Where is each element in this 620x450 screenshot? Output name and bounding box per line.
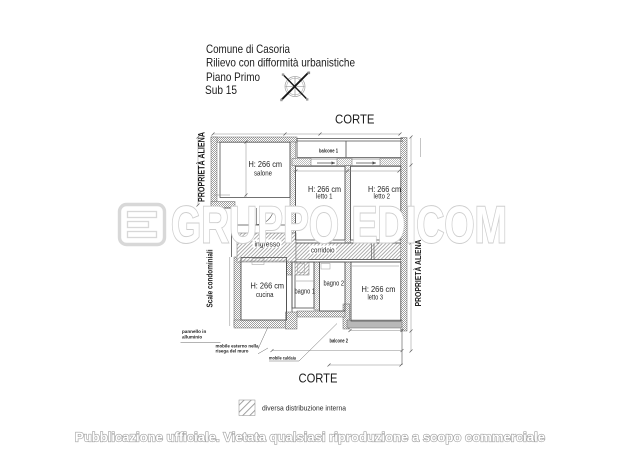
svg-text:risega del muro: risega del muro xyxy=(216,349,249,354)
svg-text:Pubblicazione ufficiale. Vieta: Pubblicazione ufficiale. Vietata qualsia… xyxy=(75,430,545,445)
svg-text:Rilievo con difformità urbanis: Rilievo con difformità urbanistiche xyxy=(206,56,355,70)
svg-text:bagno 2: bagno 2 xyxy=(324,280,345,287)
svg-text:PROPRIETÀ ALIENA: PROPRIETÀ ALIENA xyxy=(197,132,208,202)
svg-text:diversa distribuzione interna: diversa distribuzione interna xyxy=(262,404,347,413)
svg-text:salone: salone xyxy=(254,170,272,177)
svg-text:Comune di Casoria: Comune di Casoria xyxy=(206,42,290,56)
svg-text:H: 266 cm: H: 266 cm xyxy=(368,184,401,194)
svg-text:pannello in: pannello in xyxy=(182,329,206,334)
svg-text:Piano Primo: Piano Primo xyxy=(206,70,260,84)
svg-text:GRUPPO: GRUPPO xyxy=(171,196,339,254)
svg-text:balcone 2: balcone 2 xyxy=(330,339,349,345)
svg-text:CORTE: CORTE xyxy=(299,372,338,386)
svg-text:H: 266 cm: H: 266 cm xyxy=(251,281,285,291)
svg-text:bagno 1: bagno 1 xyxy=(295,289,316,296)
svg-text:Sub 15: Sub 15 xyxy=(205,83,237,97)
svg-text:Scale condominiali: Scale condominiali xyxy=(206,250,215,308)
svg-text:alluminio: alluminio xyxy=(182,335,202,340)
svg-text:H: 266 cm: H: 266 cm xyxy=(308,184,341,194)
svg-text:cucina: cucina xyxy=(256,292,274,299)
svg-text:H: 266 cm: H: 266 cm xyxy=(362,284,396,294)
svg-text:balcone 1: balcone 1 xyxy=(319,149,338,155)
svg-text:EDICOM: EDICOM xyxy=(352,196,508,254)
svg-text:mobile caldaia: mobile caldaia xyxy=(269,356,296,361)
svg-text:CORTE: CORTE xyxy=(335,113,375,127)
svg-text:letto 3: letto 3 xyxy=(368,294,384,301)
svg-text:H: 266 cm: H: 266 cm xyxy=(249,159,283,169)
